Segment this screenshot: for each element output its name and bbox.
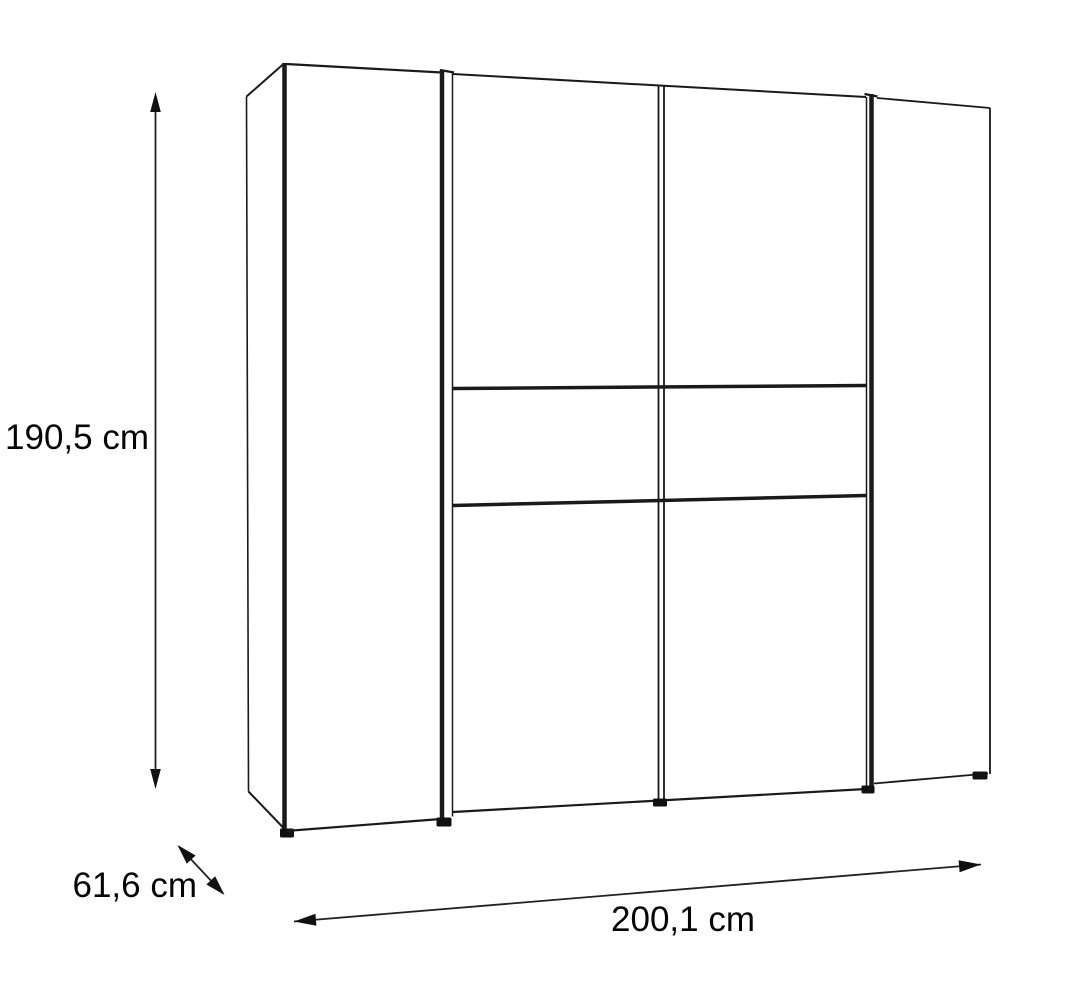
left-side-panel (247, 64, 286, 830)
height-dimension: 190,5 cm (5, 92, 161, 789)
depth-dimension-label: 61,6 cm (73, 866, 198, 905)
height-dimension-label: 190,5 cm (5, 418, 149, 457)
right-outer-foot (973, 772, 987, 779)
right-door-frame-top-cap (865, 94, 878, 97)
bottom-edges (286, 774, 988, 832)
door-strip-lower (453, 496, 866, 506)
door-meeting-edge (654, 85, 667, 806)
top-edge-left-section (286, 64, 442, 73)
top-edge-right-section (877, 98, 990, 108)
top-edge-middle-sections (453, 74, 866, 97)
drawing-canvas: 190,5 cm 61,6 cm 200,1 cm (0, 0, 1080, 993)
side-panel-back-edge (247, 97, 249, 792)
bottom-edge-right-section (874, 774, 988, 784)
width-dimension-label: 200,1 cm (611, 900, 755, 939)
left-door-frame-foot (437, 818, 451, 826)
wardrobe-outline (247, 63, 991, 837)
side-panel-top-edge (247, 64, 285, 97)
arrow-left-icon (294, 914, 316, 926)
door-meeting-foot (654, 799, 667, 806)
width-dimension: 200,1 cm (294, 860, 981, 939)
side-panel-bottom-edge (249, 792, 286, 830)
right-door-frame-foot (862, 786, 874, 793)
door-decor-strips (453, 386, 866, 506)
door-strip-upper (453, 386, 866, 389)
arrow-up-icon (150, 92, 161, 112)
right-panel (973, 108, 990, 779)
top-edges (286, 64, 990, 108)
left-door-frame (437, 70, 454, 826)
wardrobe-dimension-diagram: 190,5 cm 61,6 cm 200,1 cm (0, 0, 1080, 993)
bottom-edge-left-section (286, 819, 441, 831)
depth-dimension: 61,6 cm (73, 845, 225, 905)
right-door-frame (862, 94, 878, 793)
arrow-down-icon (150, 769, 161, 789)
arrow-right-icon (959, 860, 981, 872)
